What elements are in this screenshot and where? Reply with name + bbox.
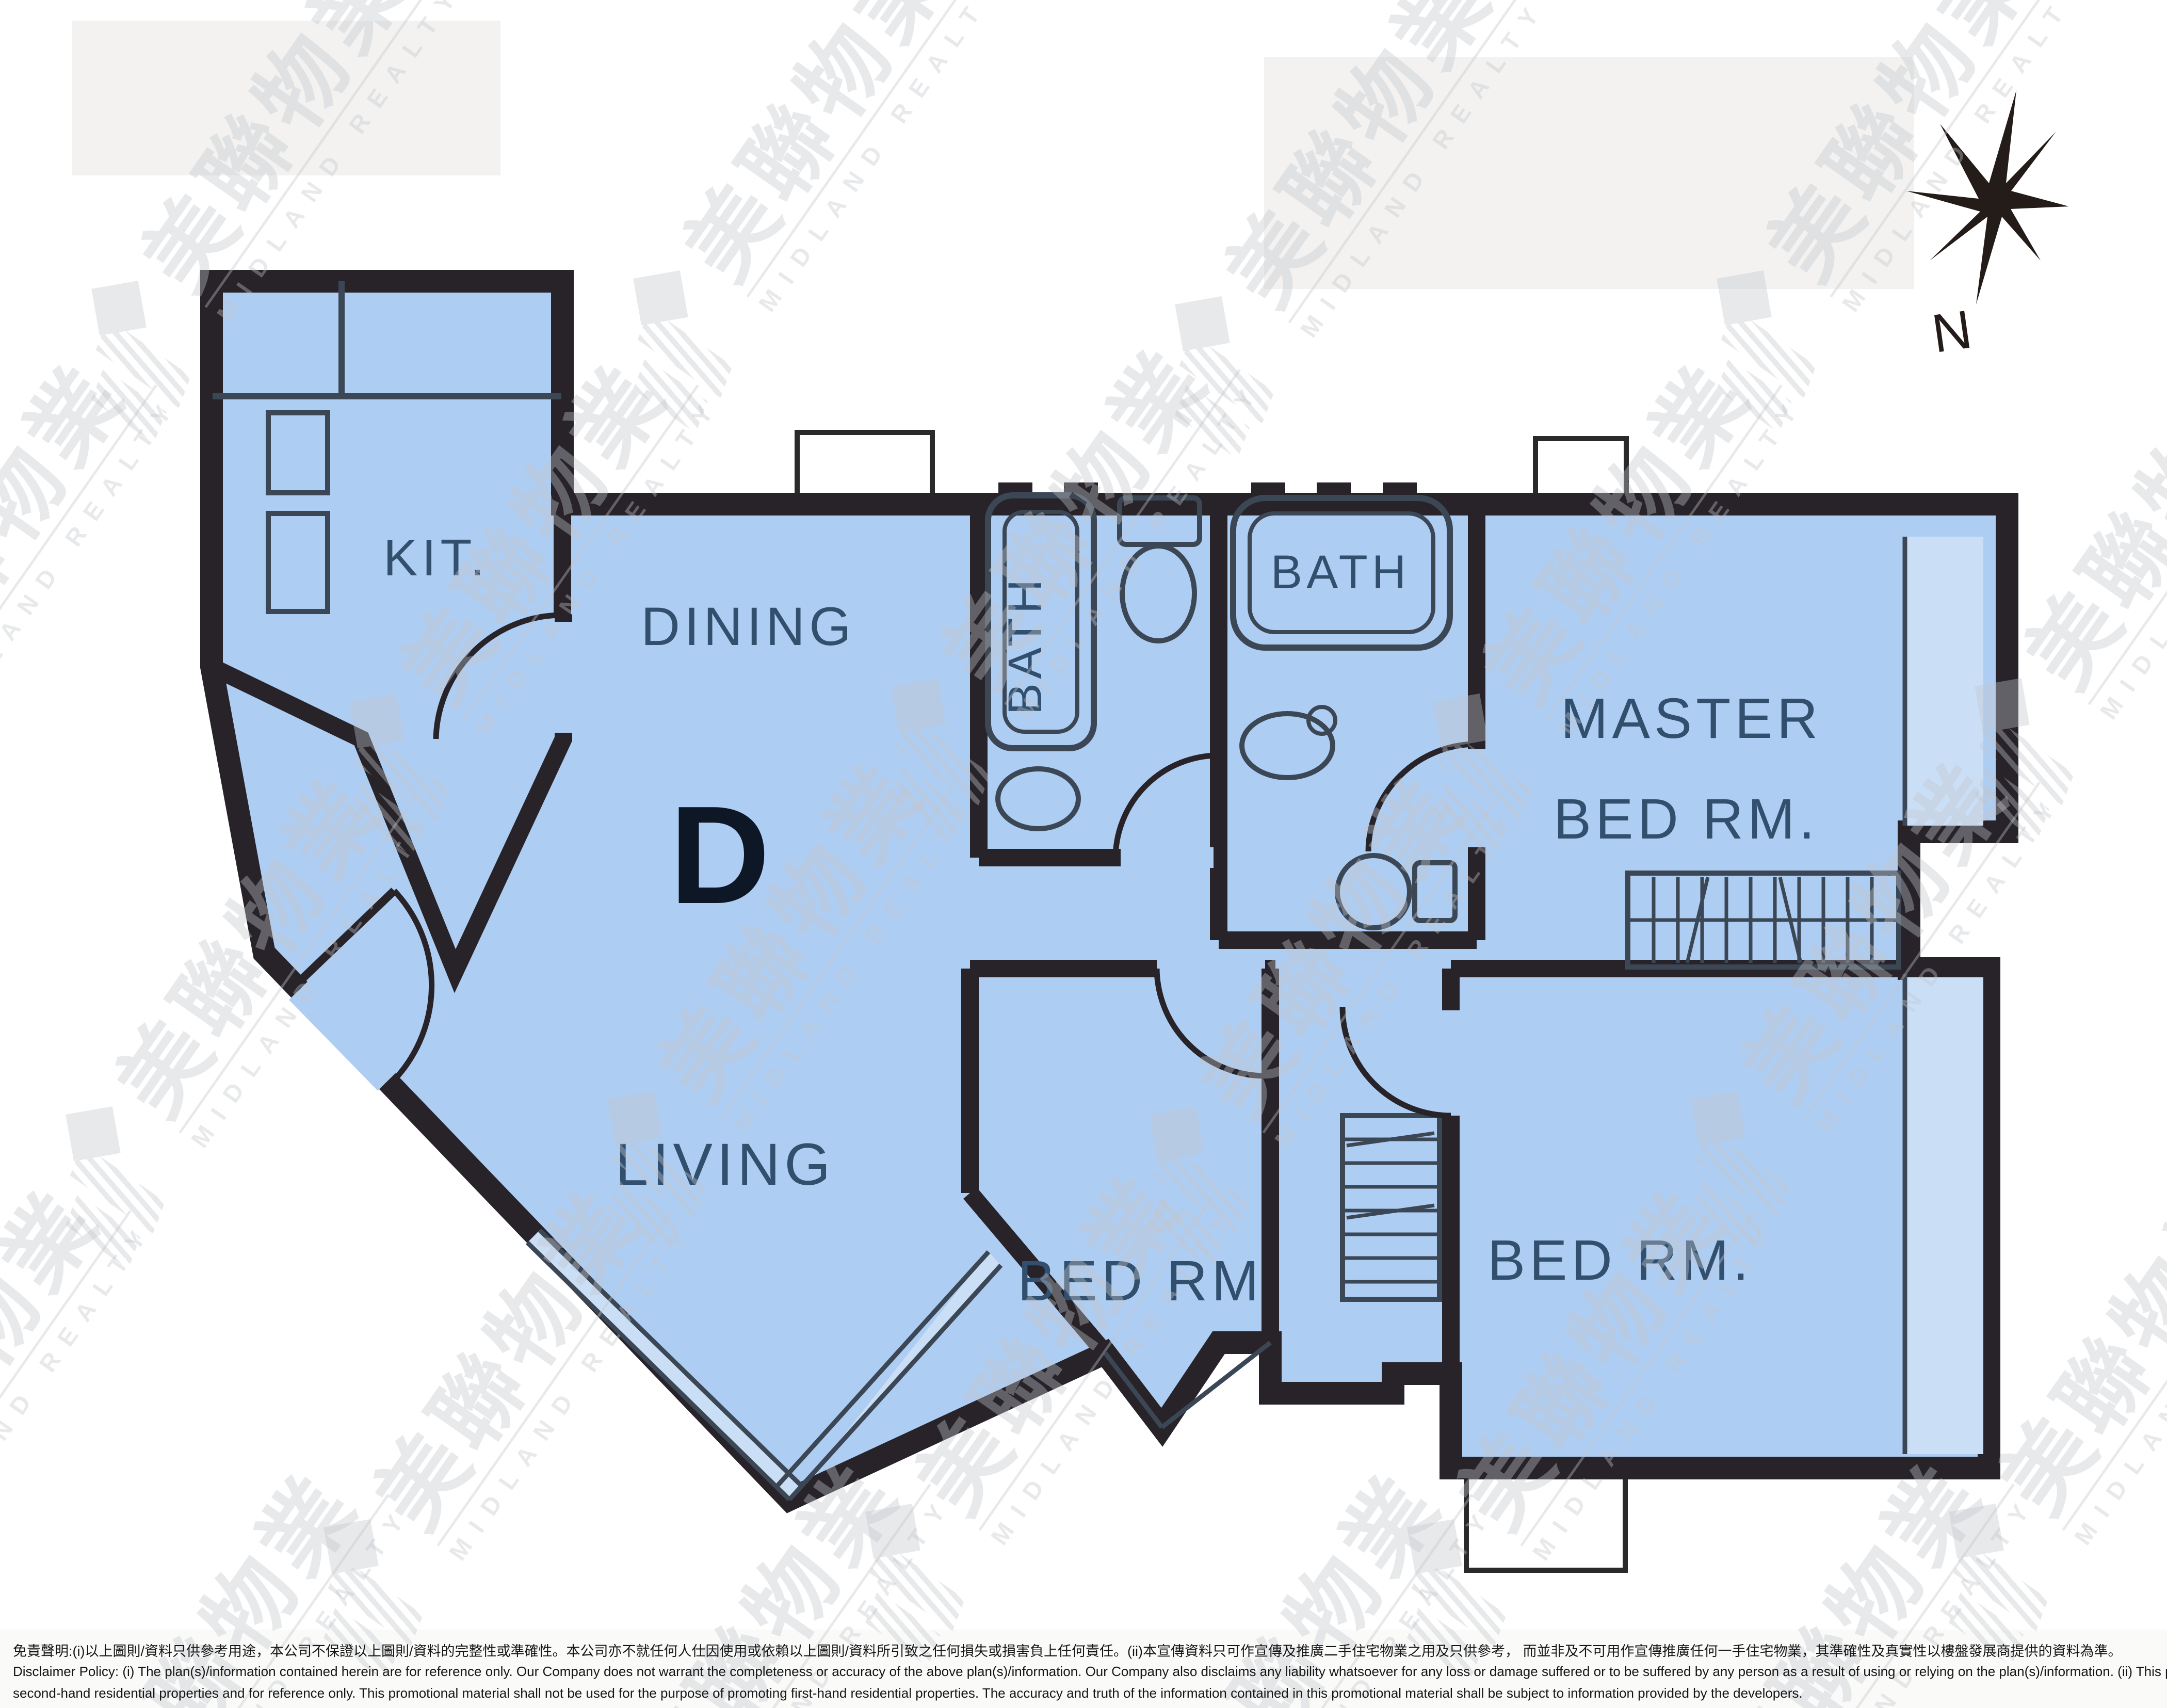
room-label-living: LIVING (615, 1132, 834, 1198)
compass-star-icon (1906, 90, 2069, 304)
unit-letter: D (670, 778, 770, 933)
disclaimer-line-english-1: Disclaimer Policy: (i) The plan(s)/infor… (13, 1664, 2167, 1680)
disclaimer-line-english-2: second-hand residential properties and f… (13, 1685, 1803, 1701)
floor-plan-page: KIT. DINING D LIVING BED RM BED RM. MAST… (0, 0, 2167, 1708)
window-bay-bottom-bedroom (1466, 1468, 1625, 1570)
room-label-kitchen: KIT. (383, 529, 489, 587)
floor-plan-drawing: KIT. DINING D LIVING BED RM BED RM. MAST… (0, 0, 2167, 1708)
room-label-master-line2: BED RM. (1554, 787, 1819, 851)
unit-outline-walls (212, 281, 2007, 1500)
room-label-bedroom-middle: BED RM (1017, 1249, 1263, 1313)
compass-north-label: N (1928, 299, 1975, 364)
compass: N (1906, 90, 2069, 364)
disclaimer-line-chinese: 免責聲明:(i)以上圖則/資料只供參考用途，本公司不保證以上圖則/資料的完整性或… (13, 1640, 2122, 1660)
room-label-dining: DINING (641, 597, 855, 657)
room-label-bath-left: BATH (999, 575, 1052, 715)
room-label-bath-master: BATH (1271, 546, 1411, 599)
room-label-bedroom-right: BED RM. (1487, 1229, 1753, 1292)
room-label-master-line1: MASTER (1561, 687, 1822, 750)
